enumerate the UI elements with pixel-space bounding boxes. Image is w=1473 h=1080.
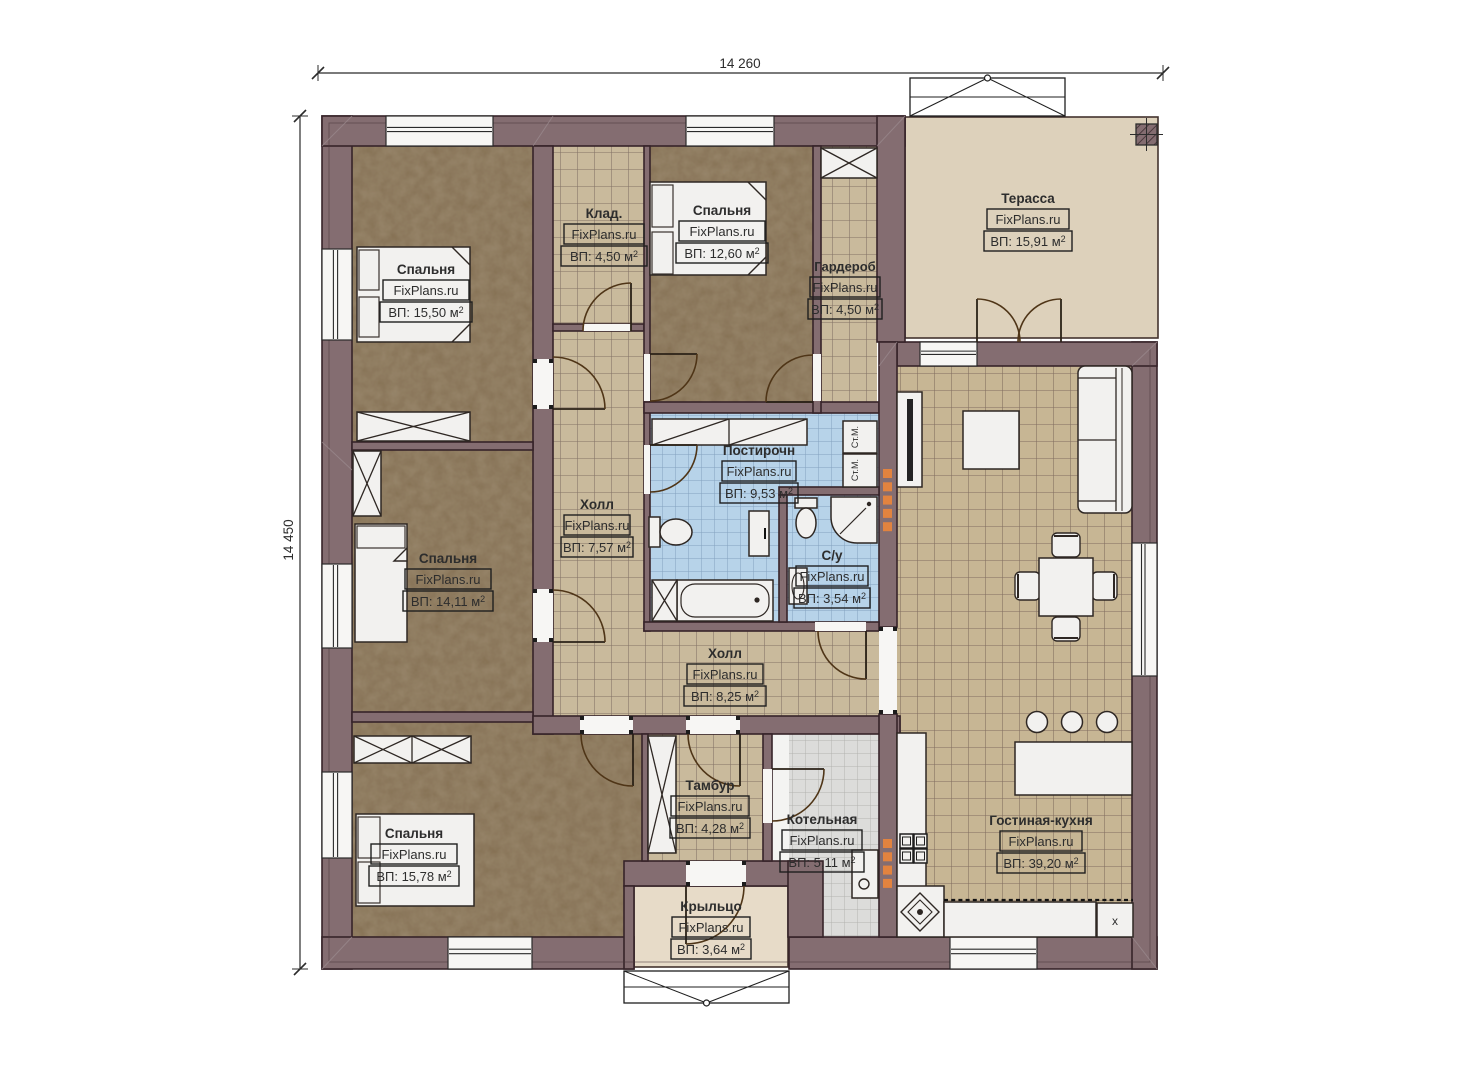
- svg-text:ВП: 8,25 м2: ВП: 8,25 м2: [691, 689, 759, 704]
- svg-text:Тамбур: Тамбур: [686, 778, 735, 793]
- svg-text:ВП: 9,53 м2: ВП: 9,53 м2: [725, 486, 793, 501]
- svg-text:Клад.: Клад.: [586, 206, 623, 221]
- svg-text:Ст.М.: Ст.М.: [850, 459, 860, 481]
- svg-text:14 450: 14 450: [281, 519, 296, 560]
- svg-text:ВП: 4,50 м2: ВП: 4,50 м2: [570, 249, 638, 264]
- svg-text:FixPlans.ru: FixPlans.ru: [692, 667, 757, 682]
- svg-text:Постирочн: Постирочн: [723, 443, 795, 458]
- svg-text:FixPlans.ru: FixPlans.ru: [995, 212, 1060, 227]
- svg-text:ВП: 15,50 м2: ВП: 15,50 м2: [388, 305, 463, 320]
- svg-text:Крыльцо: Крыльцо: [680, 899, 741, 914]
- svg-text:FixPlans.ru: FixPlans.ru: [812, 280, 877, 295]
- svg-text:Холл: Холл: [580, 497, 614, 512]
- svg-text:FixPlans.ru: FixPlans.ru: [393, 283, 458, 298]
- svg-text:Котельная: Котельная: [787, 812, 858, 827]
- svg-text:FixPlans.ru: FixPlans.ru: [571, 227, 636, 242]
- svg-text:Гостиная-кухня: Гостиная-кухня: [989, 813, 1092, 828]
- svg-text:ВП: 15,91 м2: ВП: 15,91 м2: [990, 234, 1065, 249]
- svg-text:FixPlans.ru: FixPlans.ru: [678, 920, 743, 935]
- svg-text:Холл: Холл: [708, 646, 742, 661]
- svg-text:ВП: 4,50 м2: ВП: 4,50 м2: [811, 302, 879, 317]
- svg-text:ВП: 39,20 м2: ВП: 39,20 м2: [1003, 856, 1078, 871]
- svg-text:Ст.М.: Ст.М.: [850, 426, 860, 448]
- svg-text:ВП: 12,60 м2: ВП: 12,60 м2: [684, 246, 759, 261]
- svg-text:ВП: 5,11 м2: ВП: 5,11 м2: [788, 855, 855, 870]
- svg-text:Спальня: Спальня: [693, 203, 751, 218]
- svg-text:FixPlans.ru: FixPlans.ru: [564, 518, 629, 533]
- svg-text:FixPlans.ru: FixPlans.ru: [689, 224, 754, 239]
- svg-text:ВП: 3,64 м2: ВП: 3,64 м2: [677, 942, 745, 957]
- svg-text:14 260: 14 260: [719, 56, 760, 71]
- svg-text:FixPlans.ru: FixPlans.ru: [1008, 834, 1073, 849]
- svg-text:FixPlans.ru: FixPlans.ru: [677, 799, 742, 814]
- svg-text:ВП: 3,54 м2: ВП: 3,54 м2: [798, 591, 866, 606]
- svg-text:FixPlans.ru: FixPlans.ru: [381, 847, 446, 862]
- svg-text:Спальня: Спальня: [419, 551, 477, 566]
- svg-text:Спальня: Спальня: [385, 826, 443, 841]
- svg-text:FixPlans.ru: FixPlans.ru: [799, 569, 864, 584]
- svg-text:ВП: 15,78 м2: ВП: 15,78 м2: [376, 869, 451, 884]
- svg-text:ВП: 7,57 м2: ВП: 7,57 м2: [563, 540, 631, 555]
- svg-text:Спальня: Спальня: [397, 262, 455, 277]
- svg-text:х: х: [1112, 914, 1118, 928]
- svg-text:Гардероб: Гардероб: [814, 259, 875, 274]
- svg-text:С/у: С/у: [821, 548, 843, 563]
- svg-text:FixPlans.ru: FixPlans.ru: [726, 464, 791, 479]
- svg-text:Терасса: Терасса: [1001, 191, 1055, 206]
- svg-text:FixPlans.ru: FixPlans.ru: [415, 572, 480, 587]
- svg-text:ВП: 14,11 м2: ВП: 14,11 м2: [411, 594, 485, 609]
- svg-text:ВП: 4,28 м2: ВП: 4,28 м2: [676, 821, 744, 836]
- svg-text:FixPlans.ru: FixPlans.ru: [789, 833, 854, 848]
